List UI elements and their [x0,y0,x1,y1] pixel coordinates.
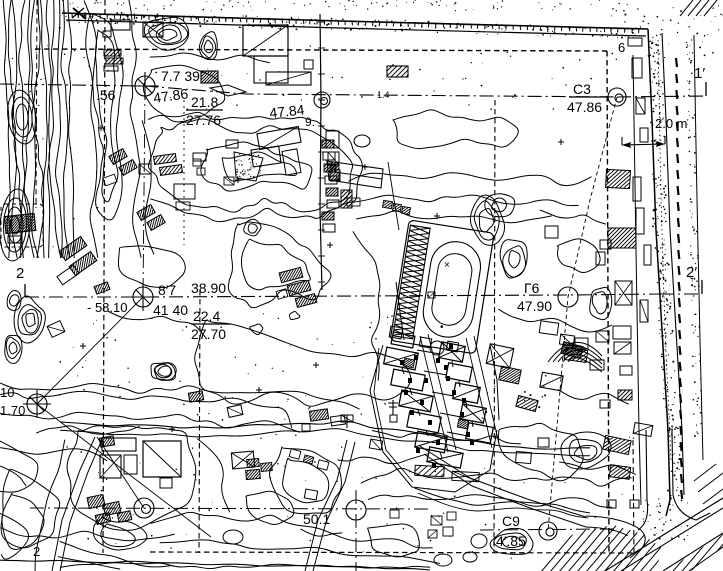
svg-text:8′7: 8′7 [158,282,176,298]
svg-text:47.90: 47.90 [517,298,552,314]
svg-text:С9: С9 [502,513,520,529]
svg-text:Г6: Г6 [524,280,540,296]
svg-text:•: • [440,322,444,333]
svg-text:C3: C3 [573,81,591,97]
svg-text:22.4: 22.4 [193,308,220,324]
svg-text:38.90: 38.90 [191,280,226,296]
svg-text:2.0 m: 2.0 m [655,116,688,131]
svg-text:- 58.10: - 58.10 [87,300,127,315]
svg-text:27.70: 27.70 [191,326,226,342]
svg-text:9.: 9. [305,115,315,129]
svg-text:2: 2 [16,265,24,282]
svg-text:1.4: 1.4 [377,90,390,100]
svg-text:7.7 39: 7.7 39 [161,68,200,84]
svg-text:×: × [444,260,450,271]
svg-text:47.86: 47.86 [567,99,602,115]
svg-text:6: 6 [618,40,625,55]
svg-text:2′: 2′ [686,264,697,281]
svg-text:1′: 1′ [694,65,705,82]
svg-text:41 40: 41 40 [153,302,188,318]
